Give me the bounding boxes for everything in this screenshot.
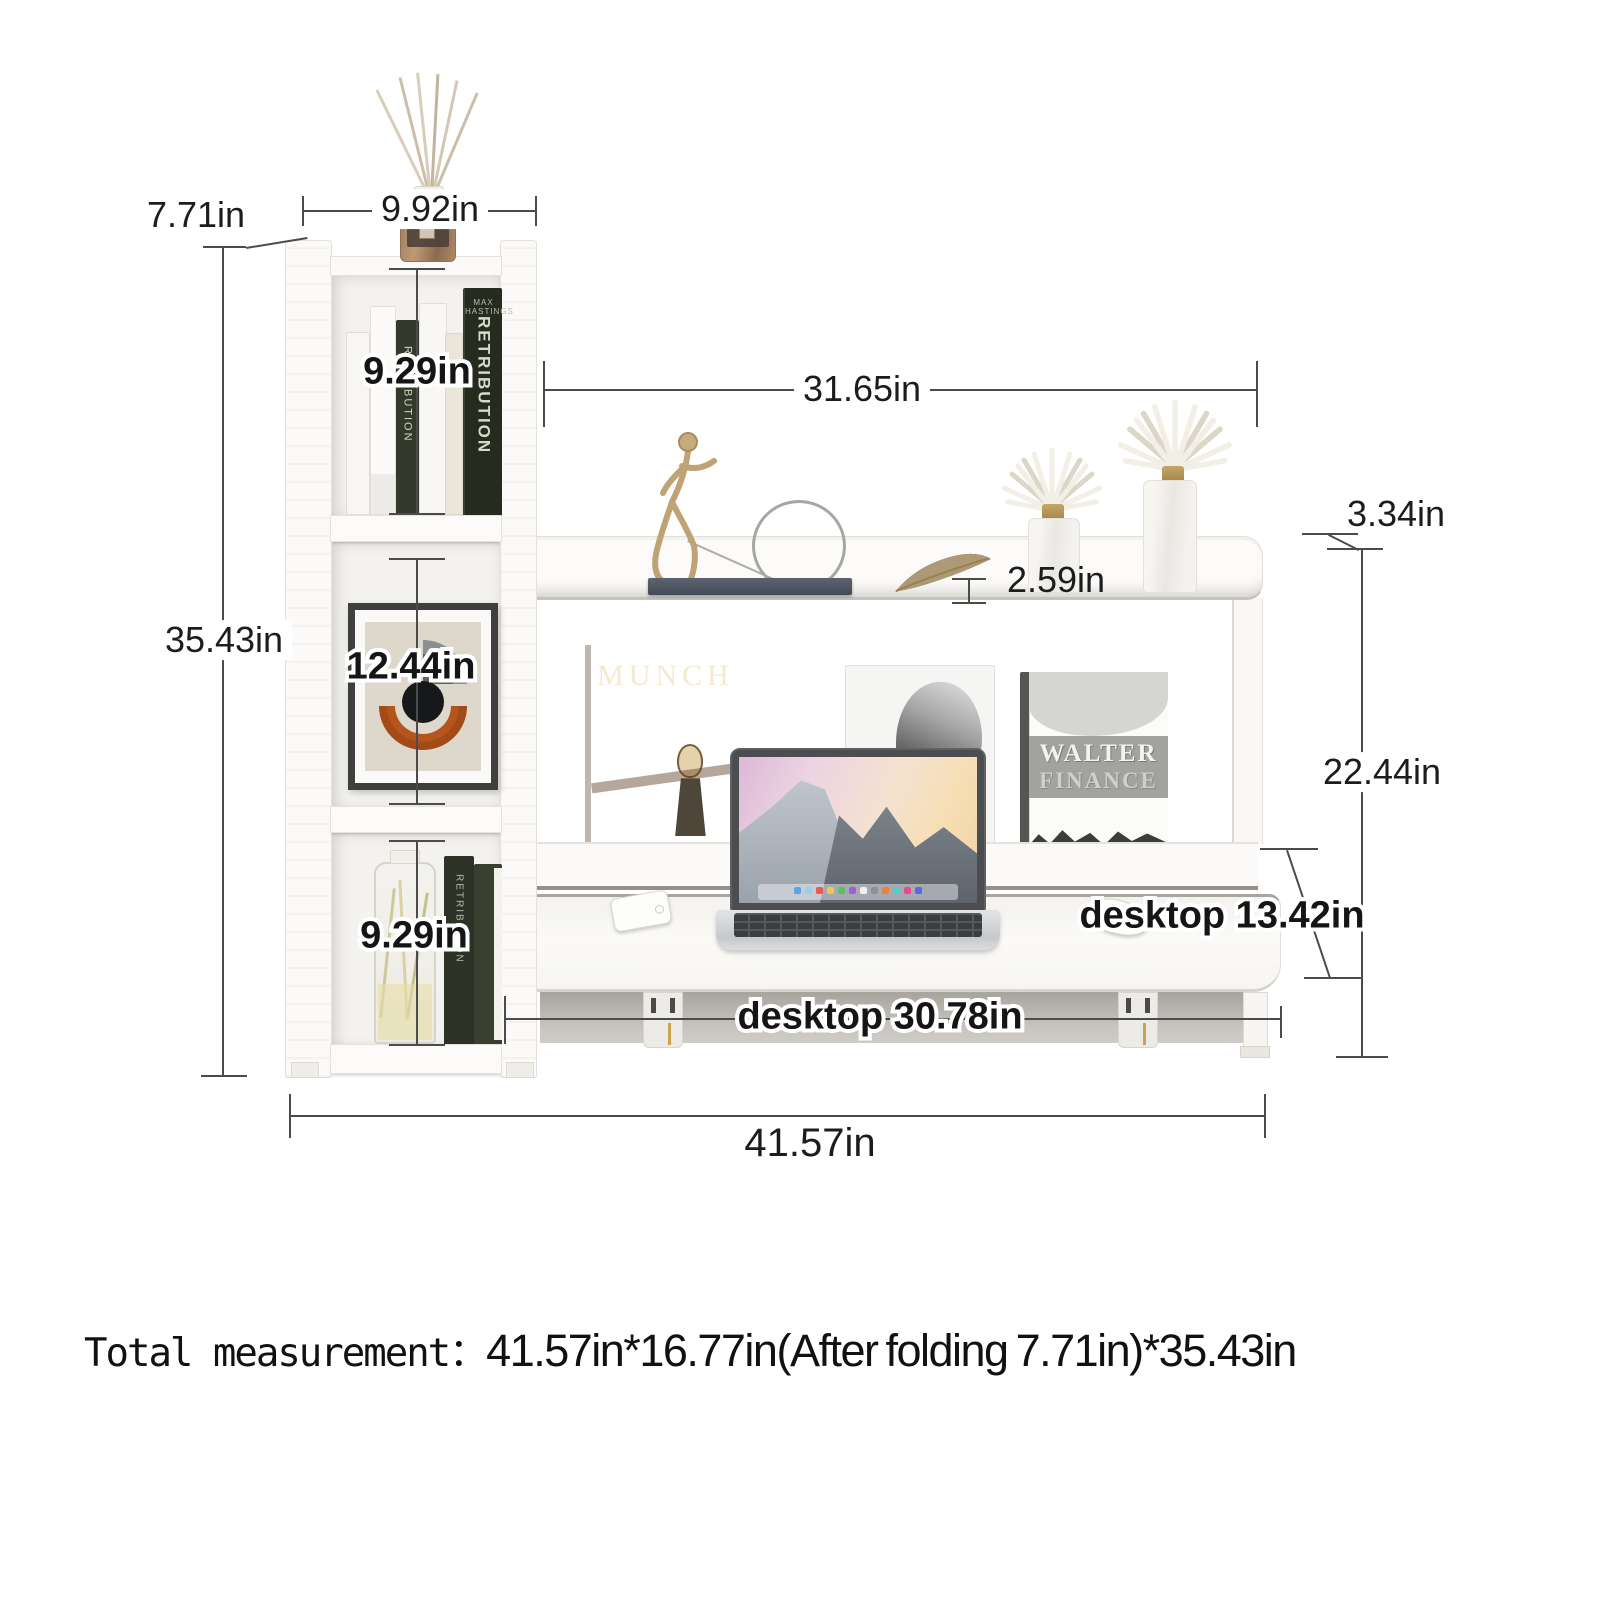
laptop-base [716, 910, 1000, 950]
book-pages [494, 868, 502, 1040]
dim-shelf1-label: 9.29in [363, 351, 471, 394]
dim-shelf2-tick-top [389, 558, 445, 560]
dim-shelf1-tick-bottom [389, 513, 445, 515]
desk-right-foot [1240, 1046, 1270, 1058]
book-walter-finance: WALTER FINANCE [1020, 672, 1168, 858]
framed-art [348, 603, 498, 790]
bookshelf-right-foot [506, 1062, 534, 1078]
dim-total-height-label: 35.43in [156, 620, 292, 660]
dim-upper-width-label: 31.65in [794, 369, 930, 409]
dim-total-width-tick-left [289, 1094, 291, 1138]
walter-wave [1029, 672, 1168, 736]
laptop-screen [730, 748, 986, 912]
folding-bracket-right [1118, 992, 1158, 1048]
dim-top-width-tick-right [535, 196, 537, 226]
dim-shelf2-tick-bottom [389, 803, 445, 805]
dim-upper-width-tick-right [1256, 361, 1258, 427]
dim-lip-label: 2.59in [998, 560, 1114, 600]
dim-shelf-edge-label: 3.34in [1338, 494, 1454, 534]
dim-total-width-tick-right [1264, 1094, 1266, 1138]
upper-shelf-right-post [1232, 598, 1263, 844]
book-spine-title: RETRIBUTION [402, 320, 414, 515]
bookshelf-divider-1 [330, 515, 502, 542]
bookshelf-right-post [500, 240, 537, 1078]
dim-top-width-label: 9.92in [372, 189, 488, 229]
coral-small [1000, 448, 1104, 512]
desk-right-support [1243, 992, 1268, 1048]
dim-shelf-edge-tick2 [1327, 548, 1383, 550]
book-spine-dark [474, 864, 502, 1044]
dim-total-height-tick-bottom [201, 1075, 247, 1077]
bookshelf-divider-2 [330, 806, 502, 833]
dim-desk-depth-tick-bottom [1304, 977, 1362, 979]
dim-desk-width-tick-right [1280, 1006, 1282, 1038]
laptop-dock [758, 884, 958, 900]
scream-figure [677, 744, 707, 834]
book-spine [370, 306, 396, 515]
dim-desk-width-tick-left [504, 996, 506, 1044]
laptop-wallpaper [739, 757, 977, 903]
abstract-print [355, 610, 491, 783]
dim-shelf3-tick-bottom [389, 1044, 445, 1046]
book-munch: MUNCH [585, 645, 740, 852]
total-measurement-value: 41.57in*16.77in(After folding 7.71in)*35… [486, 1325, 1296, 1376]
total-measurement: Total measurement：41.57in*16.77in(After … [84, 1322, 1296, 1378]
dim-lip-tick-bottom [952, 602, 986, 604]
dim-shelf-desk-tick-bottom [1336, 1056, 1388, 1058]
dim-top-width-tick-left [302, 196, 304, 226]
book-spine [419, 303, 447, 515]
book-title: RETRIBUTION [474, 316, 494, 496]
dim-shelf1-tick-top [389, 268, 445, 270]
product-dimension-diagram: RETRIBUTION MAX HASTINGS RETRIBUTION RET… [0, 0, 1600, 1600]
dim-shelf2-label: 12.44in [347, 646, 476, 689]
book-front-max-hastings: MAX HASTINGS RETRIBUTION [463, 288, 502, 515]
walter-band: WALTER FINANCE [1029, 736, 1168, 798]
dim-fold-depth-label: 7.71in [138, 195, 254, 235]
bookshelf-left-foot [291, 1062, 319, 1078]
sculpture-base [648, 578, 852, 595]
dim-upper-width-tick-left [543, 361, 545, 427]
dim-desk-depth-label: desktop 13.42in [1079, 895, 1364, 938]
vase-large-cylinder [1143, 480, 1197, 593]
dim-fold-tick [203, 246, 246, 248]
dim-shelf3-tick-top [389, 840, 445, 842]
dim-shelf3-label: 9.29in [360, 915, 468, 958]
walter-title1: WALTER [1029, 740, 1168, 768]
sculpture-runner-figure [636, 428, 746, 588]
dim-total-height-line [222, 248, 224, 1076]
total-measurement-label: Total measurement： [84, 1331, 486, 1376]
munch-title: MUNCH [591, 659, 740, 693]
dim-total-width-label: 41.57in [735, 1121, 884, 1165]
dim-shelf-desk-label: 22.44in [1314, 752, 1450, 792]
bookshelf-bottom-panel [330, 1044, 502, 1074]
walter-title2: FINANCE [1029, 768, 1168, 794]
laptop-keyboard [734, 913, 982, 937]
dim-lip-stem [968, 578, 970, 604]
folding-bracket-left [643, 992, 683, 1048]
dim-desk-width-label: desktop 30.78in [737, 996, 1022, 1039]
book-author: MAX HASTINGS [465, 298, 502, 316]
coral-large [1116, 400, 1234, 472]
dim-desk-depth-tick-top [1260, 848, 1318, 850]
dim-total-width-line [289, 1115, 1266, 1117]
dim-shelf-desk-line [1361, 549, 1363, 1058]
